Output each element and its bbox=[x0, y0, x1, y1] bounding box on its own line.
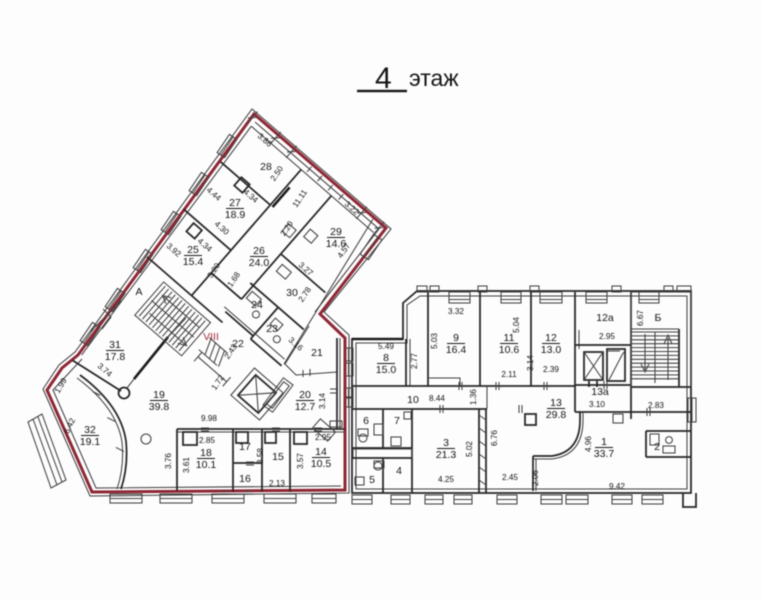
svg-text:4.25: 4.25 bbox=[438, 475, 454, 484]
svg-text:27: 27 bbox=[229, 197, 241, 209]
svg-text:1: 1 bbox=[601, 436, 607, 448]
svg-text:9.98: 9.98 bbox=[201, 414, 217, 423]
svg-text:26: 26 bbox=[253, 245, 265, 257]
svg-text:2.39: 2.39 bbox=[543, 365, 559, 374]
svg-text:5: 5 bbox=[369, 474, 375, 486]
svg-text:19.1: 19.1 bbox=[80, 436, 101, 448]
svg-text:2.83: 2.83 bbox=[648, 401, 664, 410]
svg-text:25: 25 bbox=[187, 244, 199, 256]
svg-text:2.85: 2.85 bbox=[199, 436, 215, 445]
svg-text:5.02: 5.02 bbox=[465, 441, 474, 457]
svg-text:9.42: 9.42 bbox=[609, 482, 625, 491]
svg-text:3.10: 3.10 bbox=[589, 400, 605, 409]
svg-text:39.8: 39.8 bbox=[149, 401, 170, 413]
svg-text:15: 15 bbox=[272, 451, 284, 463]
svg-text:2: 2 bbox=[654, 441, 660, 453]
svg-text:10: 10 bbox=[407, 394, 419, 406]
svg-text:1.36: 1.36 bbox=[469, 389, 478, 405]
svg-text:2.45: 2.45 bbox=[502, 473, 518, 482]
svg-text:3.58: 3.58 bbox=[256, 448, 265, 464]
svg-text:4.96: 4.96 bbox=[584, 436, 593, 452]
svg-text:10.5: 10.5 bbox=[311, 458, 332, 470]
svg-text:17: 17 bbox=[239, 441, 251, 453]
svg-text:2.95: 2.95 bbox=[315, 433, 331, 442]
svg-text:13.0: 13.0 bbox=[541, 344, 562, 356]
svg-text:19: 19 bbox=[153, 389, 165, 401]
svg-text:10.1: 10.1 bbox=[196, 459, 217, 471]
svg-text:3: 3 bbox=[443, 437, 449, 449]
svg-text:23: 23 bbox=[266, 323, 278, 335]
svg-text:6.76: 6.76 bbox=[490, 430, 499, 446]
svg-text:2.95: 2.95 bbox=[599, 332, 615, 341]
svg-text:33.7: 33.7 bbox=[594, 448, 615, 460]
svg-text:18.9: 18.9 bbox=[225, 209, 246, 221]
svg-text:12: 12 bbox=[545, 332, 557, 344]
svg-text:3.14: 3.14 bbox=[526, 355, 535, 371]
svg-text:7: 7 bbox=[394, 415, 400, 427]
svg-text:15.0: 15.0 bbox=[376, 364, 397, 376]
svg-text:2.06: 2.06 bbox=[531, 470, 540, 486]
svg-text:5.03: 5.03 bbox=[430, 333, 439, 349]
svg-text:Б: Б bbox=[655, 312, 662, 324]
svg-text:10.6: 10.6 bbox=[499, 344, 520, 356]
svg-text:3.57: 3.57 bbox=[296, 453, 305, 469]
svg-text:21: 21 bbox=[311, 347, 323, 359]
svg-text:3.61: 3.61 bbox=[182, 457, 191, 473]
svg-text:2.13: 2.13 bbox=[269, 479, 285, 488]
svg-text:6.67: 6.67 bbox=[636, 310, 645, 326]
svg-text:29.8: 29.8 bbox=[546, 409, 567, 421]
svg-text:2.77: 2.77 bbox=[410, 353, 419, 369]
svg-text:12а: 12а bbox=[596, 312, 614, 324]
svg-text:VIII: VIII bbox=[203, 331, 219, 343]
svg-text:этаж: этаж bbox=[409, 65, 459, 91]
svg-text:3.76: 3.76 bbox=[164, 453, 173, 469]
svg-text:18: 18 bbox=[200, 447, 212, 459]
svg-text:3.14: 3.14 bbox=[318, 393, 327, 409]
svg-text:8.44: 8.44 bbox=[429, 394, 445, 403]
svg-text:3.32: 3.32 bbox=[448, 307, 464, 316]
svg-text:5.49: 5.49 bbox=[378, 342, 394, 351]
svg-text:28: 28 bbox=[260, 161, 272, 173]
svg-text:9: 9 bbox=[453, 332, 459, 344]
svg-text:32: 32 bbox=[84, 424, 96, 436]
svg-text:А: А bbox=[135, 286, 142, 298]
svg-text:12.7: 12.7 bbox=[295, 401, 316, 413]
svg-text:21.3: 21.3 bbox=[436, 449, 457, 461]
svg-text:2.11: 2.11 bbox=[501, 370, 517, 379]
svg-text:20: 20 bbox=[299, 389, 311, 401]
svg-text:31: 31 bbox=[109, 339, 121, 351]
svg-text:29: 29 bbox=[330, 226, 342, 238]
svg-text:13: 13 bbox=[550, 397, 562, 409]
svg-text:15.4: 15.4 bbox=[183, 256, 204, 268]
svg-text:24.0: 24.0 bbox=[249, 257, 270, 269]
svg-text:5.04: 5.04 bbox=[512, 317, 521, 333]
svg-text:30: 30 bbox=[286, 287, 298, 299]
svg-text:24: 24 bbox=[251, 299, 263, 311]
svg-text:14: 14 bbox=[315, 446, 327, 458]
svg-text:6: 6 bbox=[363, 415, 369, 427]
svg-text:16.4: 16.4 bbox=[446, 344, 467, 356]
svg-text:17.8: 17.8 bbox=[105, 351, 126, 363]
svg-text:16: 16 bbox=[239, 473, 251, 485]
svg-text:4: 4 bbox=[396, 465, 402, 477]
svg-text:13а: 13а bbox=[591, 386, 609, 398]
svg-text:8: 8 bbox=[383, 352, 389, 364]
